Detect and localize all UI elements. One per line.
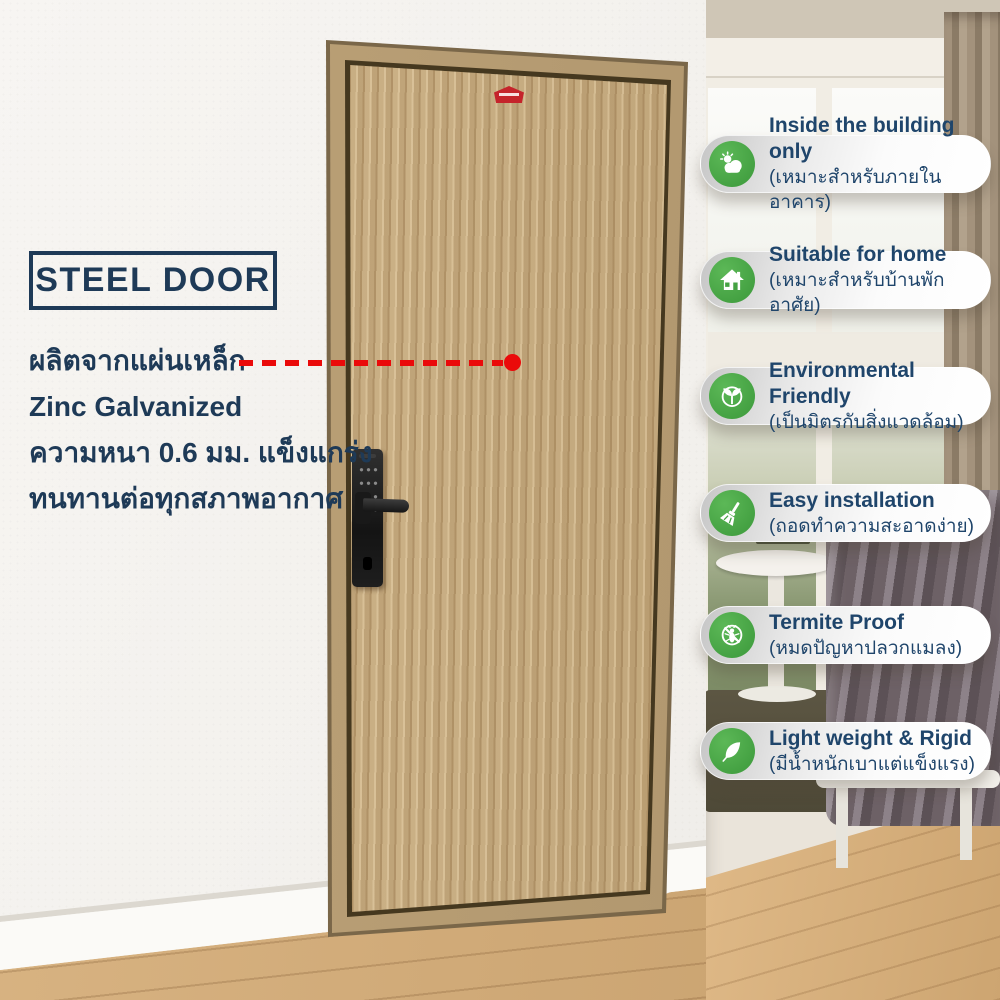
house-icon (709, 257, 755, 303)
feature-text-en: Suitable for home (769, 242, 990, 268)
feature-text-th: (เหมาะสำหรับบ้านพักอาศัย) (769, 268, 990, 318)
coffee-table-leg (836, 788, 848, 868)
feather-icon (709, 728, 755, 774)
feature-text-th: (ถอดทำความสะอาดง่าย) (769, 514, 974, 539)
feature-pill-inside-building: Inside the building only (เหมาะสำหรับภาย… (700, 135, 991, 193)
feature-text-en: Inside the building only (769, 113, 990, 165)
side-table-base (738, 686, 816, 702)
feature-pill-lightweight: Light weight & Rigid (มีน้ำหนักเบาแต่แข็… (700, 722, 991, 780)
description-line: ความหนา 0.6 มม. แข็งแกร่ง (29, 430, 359, 476)
feature-text-th: (หมดปัญหาปลวกแมลง) (769, 636, 962, 661)
brand-badge-label-strip (499, 93, 519, 96)
sun-cloud-icon (709, 141, 755, 187)
door-handle (363, 498, 409, 513)
feature-text-en: Environmental Friendly (769, 358, 990, 410)
pointer-dot (504, 354, 521, 371)
side-table (716, 550, 836, 576)
steel-door-banner: STEEL DOOR ผลิตจากแผ่นเหล็ก Zinc Galvani… (0, 0, 1000, 1000)
feature-text-th: (เหมาะสำหรับภายในอาคาร) (769, 165, 990, 215)
no-termite-icon (709, 612, 755, 658)
feature-pill-easy-installation: Easy installation (ถอดทำความสะอาดง่าย) (700, 484, 991, 542)
pointer-dashed-line (239, 360, 503, 366)
feature-pill-termite-proof: Termite Proof (หมดปัญหาปลวกแมลง) (700, 606, 991, 664)
feature-text-en: Easy installation (769, 488, 974, 514)
description-line: ทนทานต่อทุกสภาพอากาศ (29, 476, 359, 522)
broom-icon (709, 490, 755, 536)
title-box: STEEL DOOR (29, 251, 277, 310)
page-title: STEEL DOOR (35, 261, 270, 300)
feature-pill-environmental: Environmental Friendly (เป็นมิตรกับสิ่งแ… (700, 367, 991, 425)
feature-text-th: (เป็นมิตรกับสิ่งแวดล้อม) (769, 410, 990, 435)
description-line: Zinc Galvanized (29, 384, 359, 430)
feature-text-en: Termite Proof (769, 610, 962, 636)
seedling-icon (709, 373, 755, 419)
lock-keyhole (363, 557, 372, 570)
feature-text-th: (มีน้ำหนักเบาแต่แข็งแรง) (769, 752, 975, 777)
feature-pill-suitable-home: Suitable for home (เหมาะสำหรับบ้านพักอาศ… (700, 251, 991, 309)
coffee-table-leg (960, 788, 972, 860)
feature-text-en: Light weight & Rigid (769, 726, 975, 752)
